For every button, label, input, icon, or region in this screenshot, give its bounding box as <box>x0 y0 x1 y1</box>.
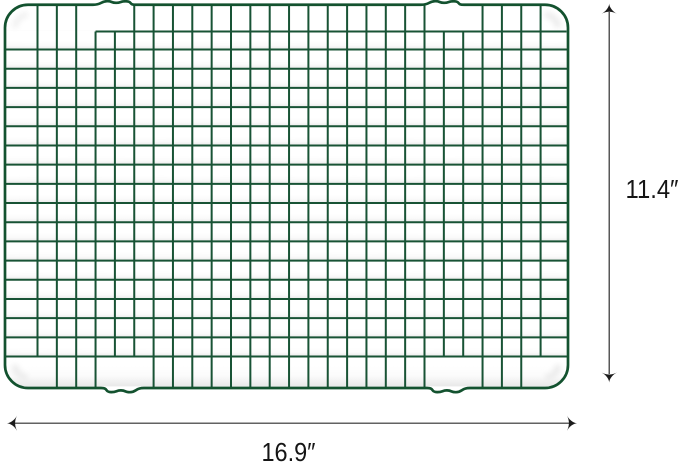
svg-text:11.4″: 11.4″ <box>626 174 679 204</box>
svg-text:16.9″: 16.9″ <box>262 437 316 465</box>
